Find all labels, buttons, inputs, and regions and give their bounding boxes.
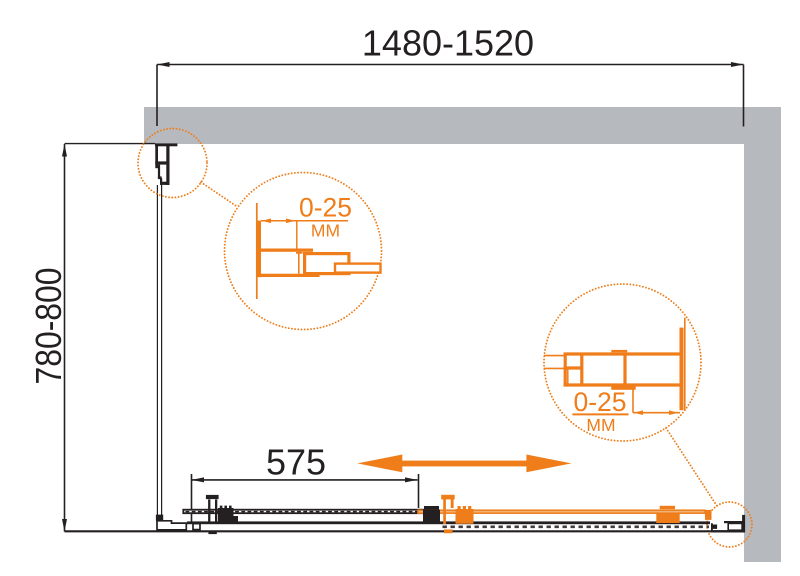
svg-text:MM: MM (311, 221, 340, 241)
svg-text:1480-1520: 1480-1520 (362, 23, 534, 64)
svg-text:MM: MM (586, 415, 615, 435)
svg-text:0-25: 0-25 (299, 193, 352, 223)
svg-text:0-25: 0-25 (573, 387, 626, 417)
svg-text:780-800: 780-800 (28, 268, 69, 385)
svg-text:575: 575 (266, 442, 326, 483)
